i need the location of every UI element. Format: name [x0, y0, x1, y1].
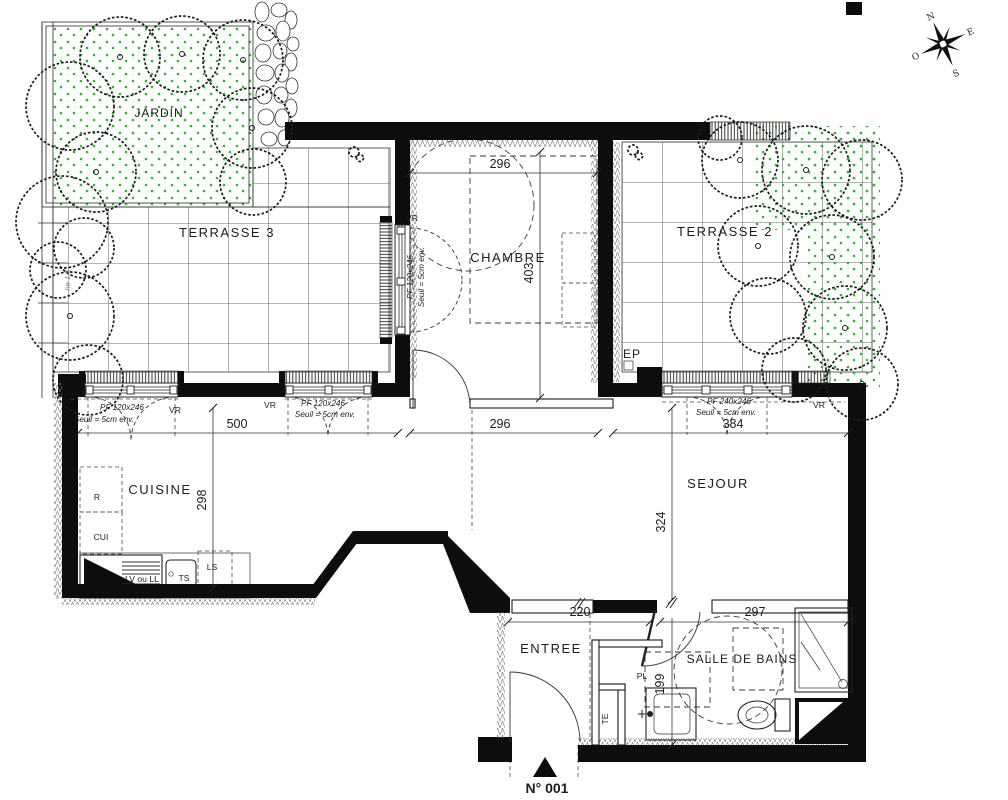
wall-top-hatched	[710, 122, 790, 140]
closet-wall-top	[592, 640, 662, 647]
w-sejour-vr: VR	[813, 400, 825, 410]
label-ep: EP	[623, 347, 641, 361]
chambre-dashed-zone	[470, 156, 597, 323]
w-chambre-vr: VR	[406, 213, 418, 223]
chambre-right-wall	[598, 140, 613, 383]
floor-plan-drawing: 296 403 500 296 384 298 324 220 297 199	[0, 0, 1008, 800]
compass-north: N	[926, 11, 937, 23]
toilet-tank	[775, 699, 790, 731]
toilet-bowl	[738, 701, 776, 729]
insul-terrace2-left	[613, 142, 620, 382]
facade-seg-4	[598, 383, 662, 397]
chambre-wall-stub	[410, 399, 415, 408]
label-pl: PL	[637, 671, 648, 681]
chambre-bottom-wall	[470, 399, 613, 408]
floor-plan-page: 296 403 500 296 384 298 324 220 297 199	[0, 0, 1008, 800]
black-corner-mass	[443, 531, 510, 613]
dim-sejour-depth: 324	[654, 512, 668, 533]
dim-sdb-width: 297	[745, 605, 766, 619]
shower-drain	[839, 680, 848, 689]
label-refrigerator: R	[94, 492, 100, 502]
bed-dashed-1	[562, 233, 595, 283]
label-ls: LS	[207, 562, 218, 572]
entry-arrow	[533, 757, 557, 777]
sejour-bottom-wall-black	[593, 600, 657, 613]
w-cuisine2-type: PF 120x246	[301, 399, 345, 408]
label-terrasse2: TERRASSE 2	[677, 224, 773, 239]
w-cuisine1-vr: VR	[169, 405, 181, 415]
partitions	[410, 350, 848, 745]
lot-number: N° 001	[526, 780, 569, 796]
dim-sejour-width: 384	[723, 417, 744, 431]
fence-height-note: he 1,5	[63, 269, 72, 291]
compass-west: O	[911, 51, 922, 63]
shower-slope-line	[801, 614, 842, 682]
chambre-left-wall-lower	[395, 335, 410, 383]
insul-left-outer	[54, 383, 62, 599]
entry-door-swing	[510, 672, 580, 742]
label-chambre: CHAMBRE	[470, 250, 546, 265]
kitchen-bottom-wall	[62, 584, 315, 598]
entree-corner-block	[478, 737, 512, 762]
dim-chambre-width-top: 296	[490, 157, 511, 171]
w-sejour-type: PF 240x246	[707, 397, 751, 406]
refrigerator-box	[80, 467, 122, 512]
insul-entree-left	[497, 612, 505, 738]
dim-sdb-depth: 199	[653, 674, 667, 695]
bed-dashed-2	[562, 283, 595, 327]
w-chambre-seuil: Seuil = 5cm env.	[417, 247, 426, 307]
w-sejour-seuil: Seuil = 5cm env.	[696, 408, 756, 417]
dim-entree-width: 220	[570, 605, 591, 619]
label-cuisine: CUISINE	[128, 482, 191, 497]
closet-wall-te	[599, 684, 625, 690]
closet-wall-mid	[618, 684, 625, 745]
w-cuisine1-type: PF 120x246	[100, 403, 144, 412]
closet-wall-left	[592, 640, 599, 745]
label-entree: ENTREE	[520, 641, 582, 656]
label-terrasse3: TERRASSE 3	[179, 225, 275, 240]
compass-rose: N E S O	[898, 0, 988, 92]
label-sejour: SEJOUR	[687, 476, 749, 491]
w-cuisine1-seuil: Seuil = 5cm env.	[74, 415, 134, 424]
dim-chambre-width: 296	[490, 417, 511, 431]
insul-kitchen-bottom	[62, 598, 315, 605]
insul-chambre-top	[410, 140, 598, 147]
label-sink-unit: TS	[179, 573, 190, 583]
facade-seg-2	[178, 383, 285, 397]
lot-marker: N° 001	[526, 757, 569, 796]
w-cuisine2-vr: VR	[264, 400, 276, 410]
label-te: TE	[600, 713, 610, 724]
label-washer: LV ou LL	[125, 574, 159, 584]
sink-tap	[169, 572, 173, 576]
sejour-bottom-wall-right	[712, 600, 848, 613]
w-cuisine2-seuil: Seuil = 5cm env.	[295, 410, 355, 419]
facade-seg-3	[372, 383, 410, 397]
bottom-wall	[578, 745, 848, 762]
label-jardin: JARDIN	[134, 106, 183, 120]
compass-south: S	[952, 68, 962, 80]
chambre-door-swing	[413, 350, 470, 407]
dim-cuisine-width: 500	[227, 417, 248, 431]
label-cooker: CUI	[94, 532, 109, 542]
dim-chambre-depth: 403	[522, 263, 536, 284]
dim-cuisine-depth: 298	[195, 490, 209, 511]
toilet-bowl-inner	[746, 707, 768, 723]
wall-top-right-stub	[846, 2, 862, 15]
shower-slope-line-2	[801, 642, 820, 670]
diagonal-top-wall	[353, 531, 448, 544]
label-salle-de-bains: SALLE DE BAINS	[687, 652, 798, 666]
w-chambre-type: PF 120x246	[406, 255, 415, 299]
compass-east: E	[966, 27, 976, 39]
washbasin-tap	[647, 711, 653, 717]
wall-top	[285, 122, 710, 140]
